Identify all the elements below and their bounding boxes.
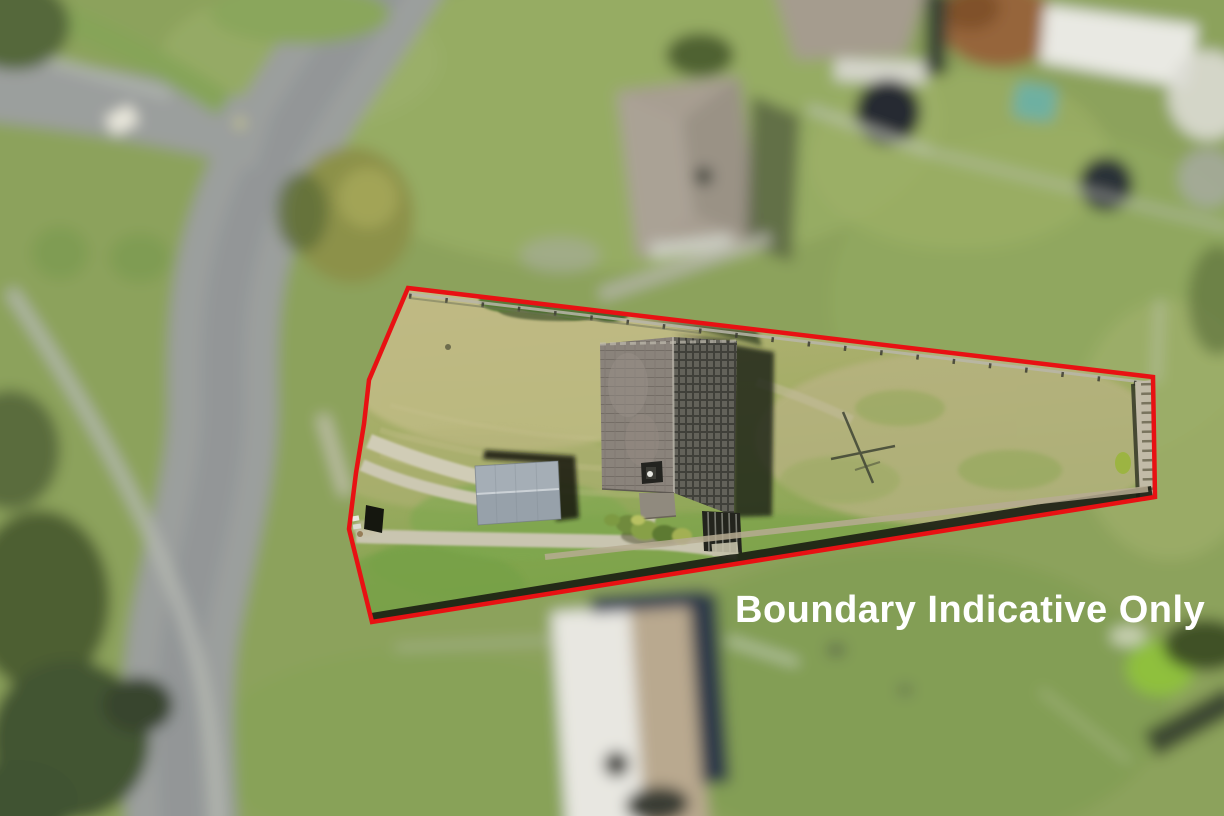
disclaimer-text: Boundary Indicative Only: [735, 589, 1205, 631]
neighbor-roof-corner: [770, 0, 930, 60]
aerial-property-photo: Boundary Indicative Only: [0, 0, 1224, 816]
aerial-photo-canvas: Boundary Indicative Only: [0, 0, 1224, 816]
neighbor-house-top: [616, 76, 760, 261]
neighbor-house-bottom: [551, 589, 734, 816]
porch-roof: [639, 493, 676, 519]
dark-panel: [364, 505, 384, 533]
roof-ridge: [673, 337, 674, 493]
pool: [1012, 81, 1059, 122]
plant-tuft: [1115, 452, 1131, 474]
